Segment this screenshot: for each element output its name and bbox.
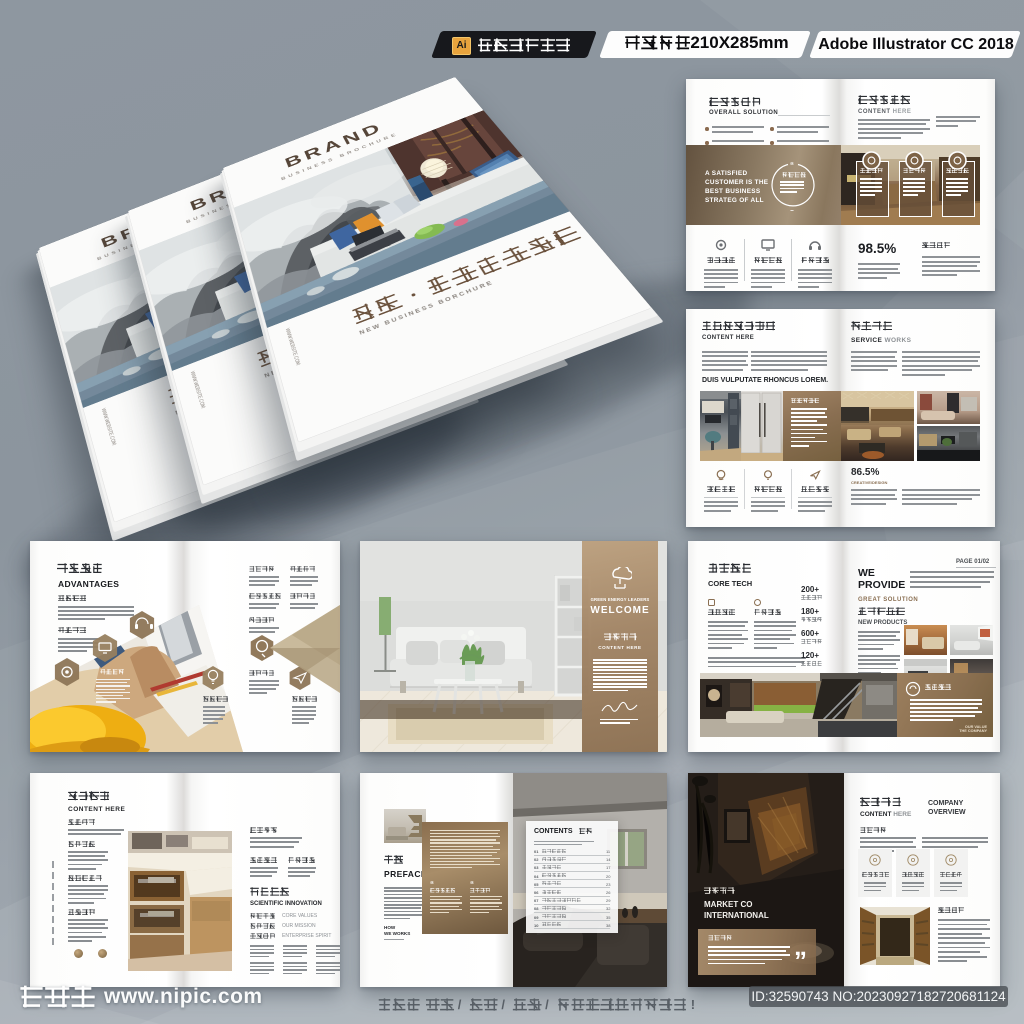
- svg-text:„: „: [790, 204, 794, 211]
- svg-text:“: “: [790, 161, 794, 170]
- svg-text:/: /: [545, 998, 549, 1011]
- svg-text:“: “: [430, 880, 434, 888]
- svg-text:“: “: [470, 880, 474, 888]
- svg-text:!: !: [691, 998, 695, 1011]
- svg-text:/: /: [501, 998, 505, 1011]
- svg-text:/: /: [458, 998, 462, 1011]
